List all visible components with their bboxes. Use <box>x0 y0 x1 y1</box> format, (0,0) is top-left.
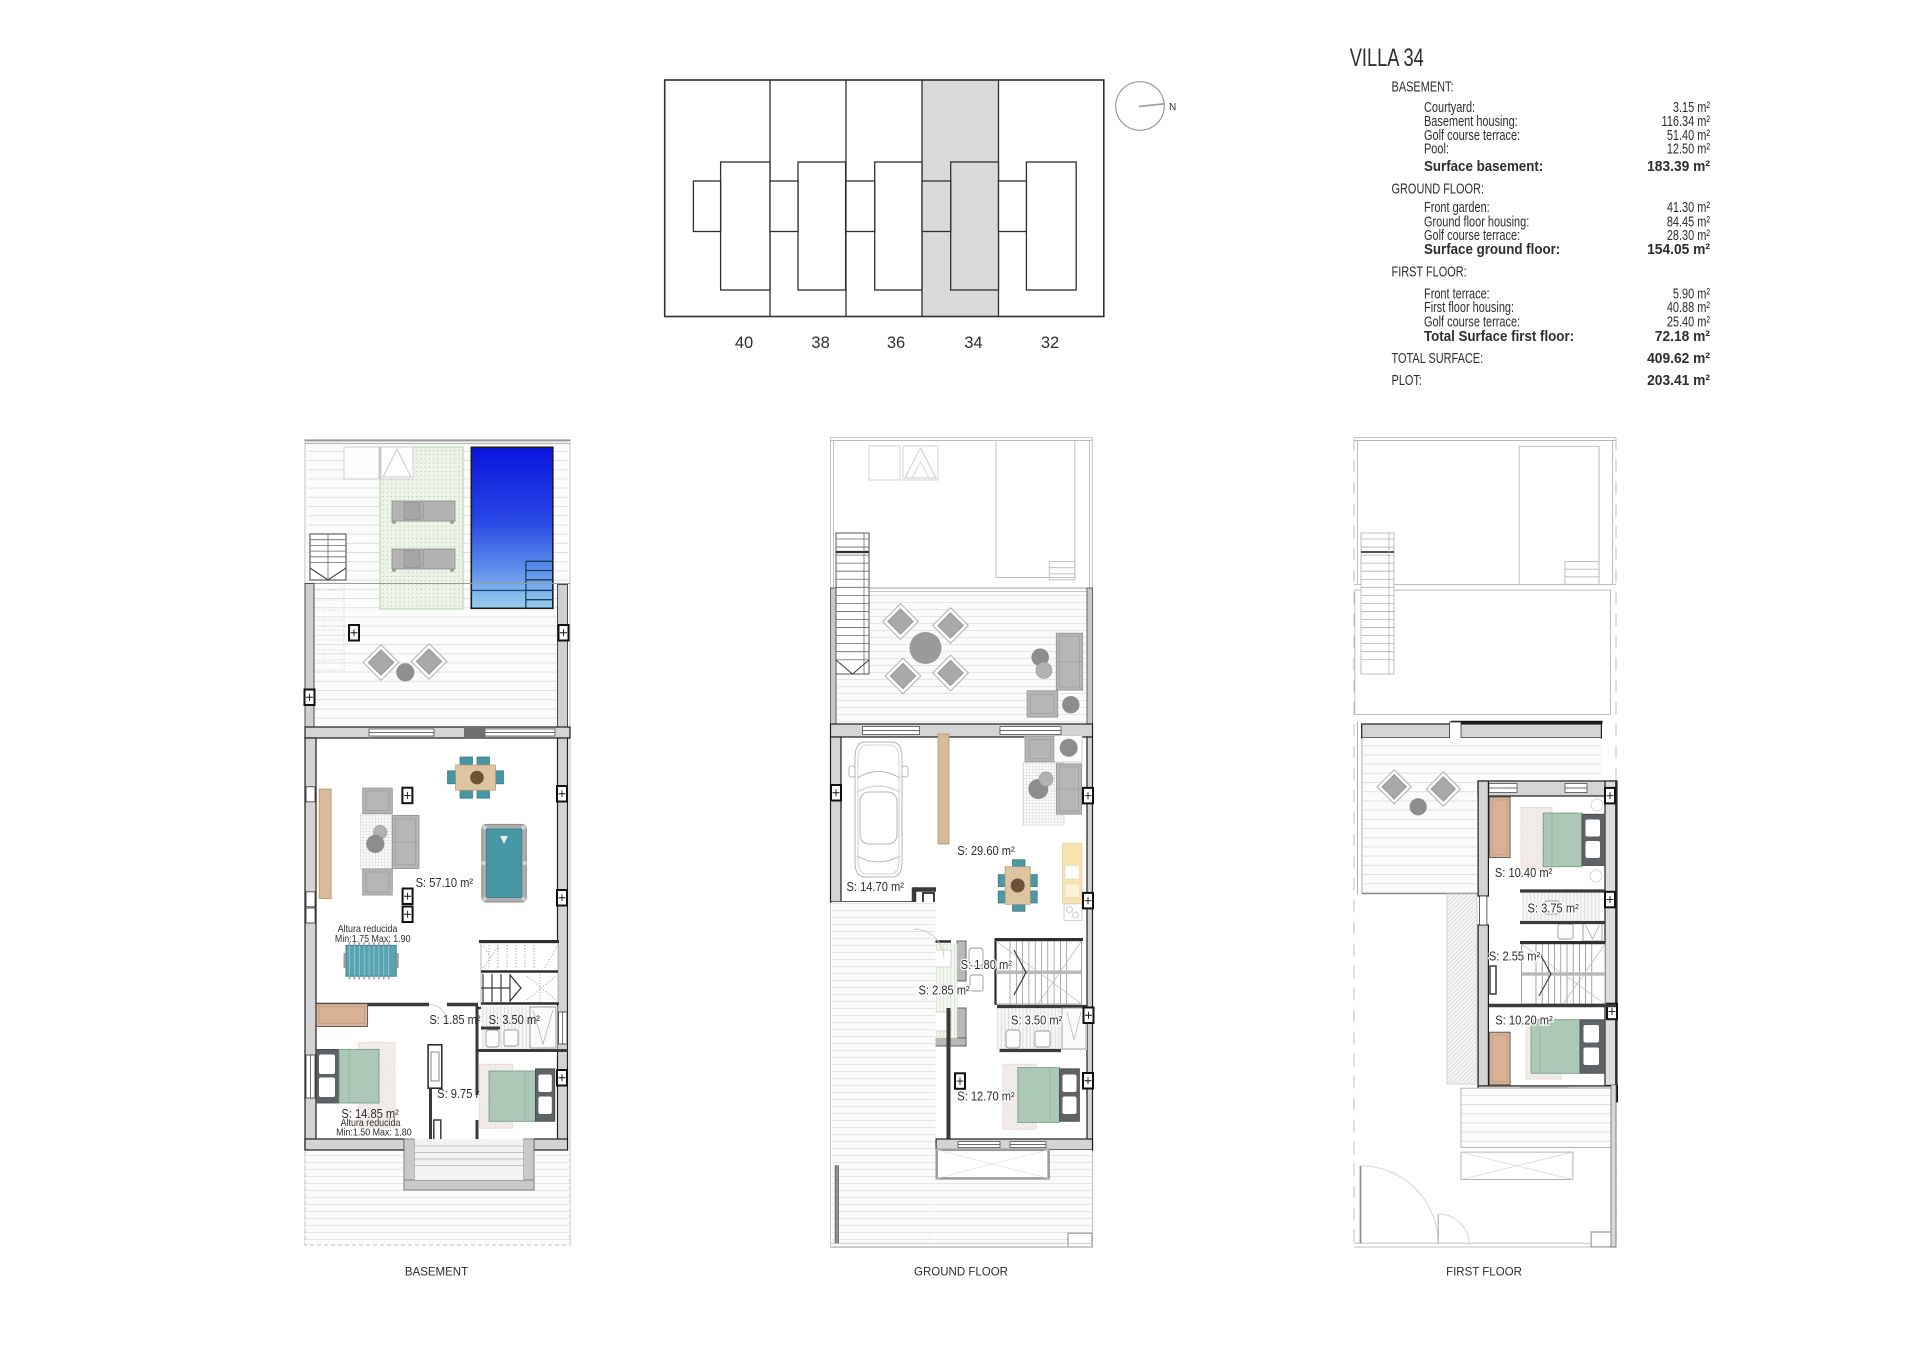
svg-text:12.50 m²: 12.50 m² <box>1667 140 1711 157</box>
svg-text:GROUND FLOOR: GROUND FLOOR <box>914 1267 1008 1279</box>
svg-text:VILLA 34: VILLA 34 <box>1350 43 1424 72</box>
svg-text:BASEMENT: BASEMENT <box>405 1267 468 1279</box>
svg-text:S: 3.75 m²: S: 3.75 m² <box>1528 901 1579 916</box>
svg-text:409.62 m²: 409.62 m² <box>1647 351 1710 368</box>
svg-text:40: 40 <box>735 334 753 352</box>
svg-text:S: 10.20 m²: S: 10.20 m² <box>1495 1013 1553 1028</box>
svg-text:154.05 m²: 154.05 m² <box>1647 242 1710 259</box>
svg-text:Pool:: Pool: <box>1424 140 1449 157</box>
svg-text:183.39 m²: 183.39 m² <box>1647 159 1710 176</box>
svg-text:S: 2.85 m²: S: 2.85 m² <box>918 983 969 998</box>
svg-text:203.41 m²: 203.41 m² <box>1647 372 1710 389</box>
svg-text:34: 34 <box>964 334 982 352</box>
svg-text:FIRST FLOOR:: FIRST FLOOR: <box>1392 263 1467 280</box>
svg-text:S: 12.70 m²: S: 12.70 m² <box>957 1089 1015 1104</box>
svg-text:Min:1.50 Max: 1.80: Min:1.50 Max: 1.80 <box>336 1127 412 1139</box>
svg-text:PLOT:: PLOT: <box>1392 371 1422 388</box>
svg-text:S: 3.50 m²: S: 3.50 m² <box>1011 1013 1062 1028</box>
svg-text:Surface ground floor:: Surface ground floor: <box>1424 241 1560 258</box>
svg-text:FIRST FLOOR: FIRST FLOOR <box>1446 1267 1522 1279</box>
svg-text:GROUND FLOOR:: GROUND FLOOR: <box>1392 180 1484 197</box>
svg-text:S: 2.55 m²: S: 2.55 m² <box>1489 949 1540 964</box>
svg-text:Surface basement:: Surface basement: <box>1424 157 1543 174</box>
svg-text:72.18 m²: 72.18 m² <box>1655 329 1710 346</box>
svg-text:36: 36 <box>887 334 905 352</box>
svg-text:S: 3.50 m²: S: 3.50 m² <box>489 1012 540 1027</box>
svg-text:38: 38 <box>811 334 829 352</box>
svg-text:TOTAL SURFACE:: TOTAL SURFACE: <box>1392 349 1484 366</box>
svg-text:Total Surface first floor:: Total Surface first floor: <box>1424 327 1574 344</box>
svg-text:32: 32 <box>1041 334 1059 352</box>
svg-text:S: 10.40 m²: S: 10.40 m² <box>1495 865 1553 880</box>
svg-text:S: 29.60 m²: S: 29.60 m² <box>957 844 1015 859</box>
svg-text:S: 1.80 m²: S: 1.80 m² <box>961 957 1012 972</box>
svg-text:S: 14.70 m²: S: 14.70 m² <box>846 879 904 894</box>
svg-text:S: 57.10 m²: S: 57.10 m² <box>416 875 474 890</box>
svg-text:BASEMENT:: BASEMENT: <box>1392 78 1454 95</box>
svg-text:S: 1.85 m²: S: 1.85 m² <box>429 1012 480 1027</box>
svg-text:N: N <box>1169 102 1176 113</box>
svg-text:Min:1.75 Max: 1.90: Min:1.75 Max: 1.90 <box>335 934 411 946</box>
